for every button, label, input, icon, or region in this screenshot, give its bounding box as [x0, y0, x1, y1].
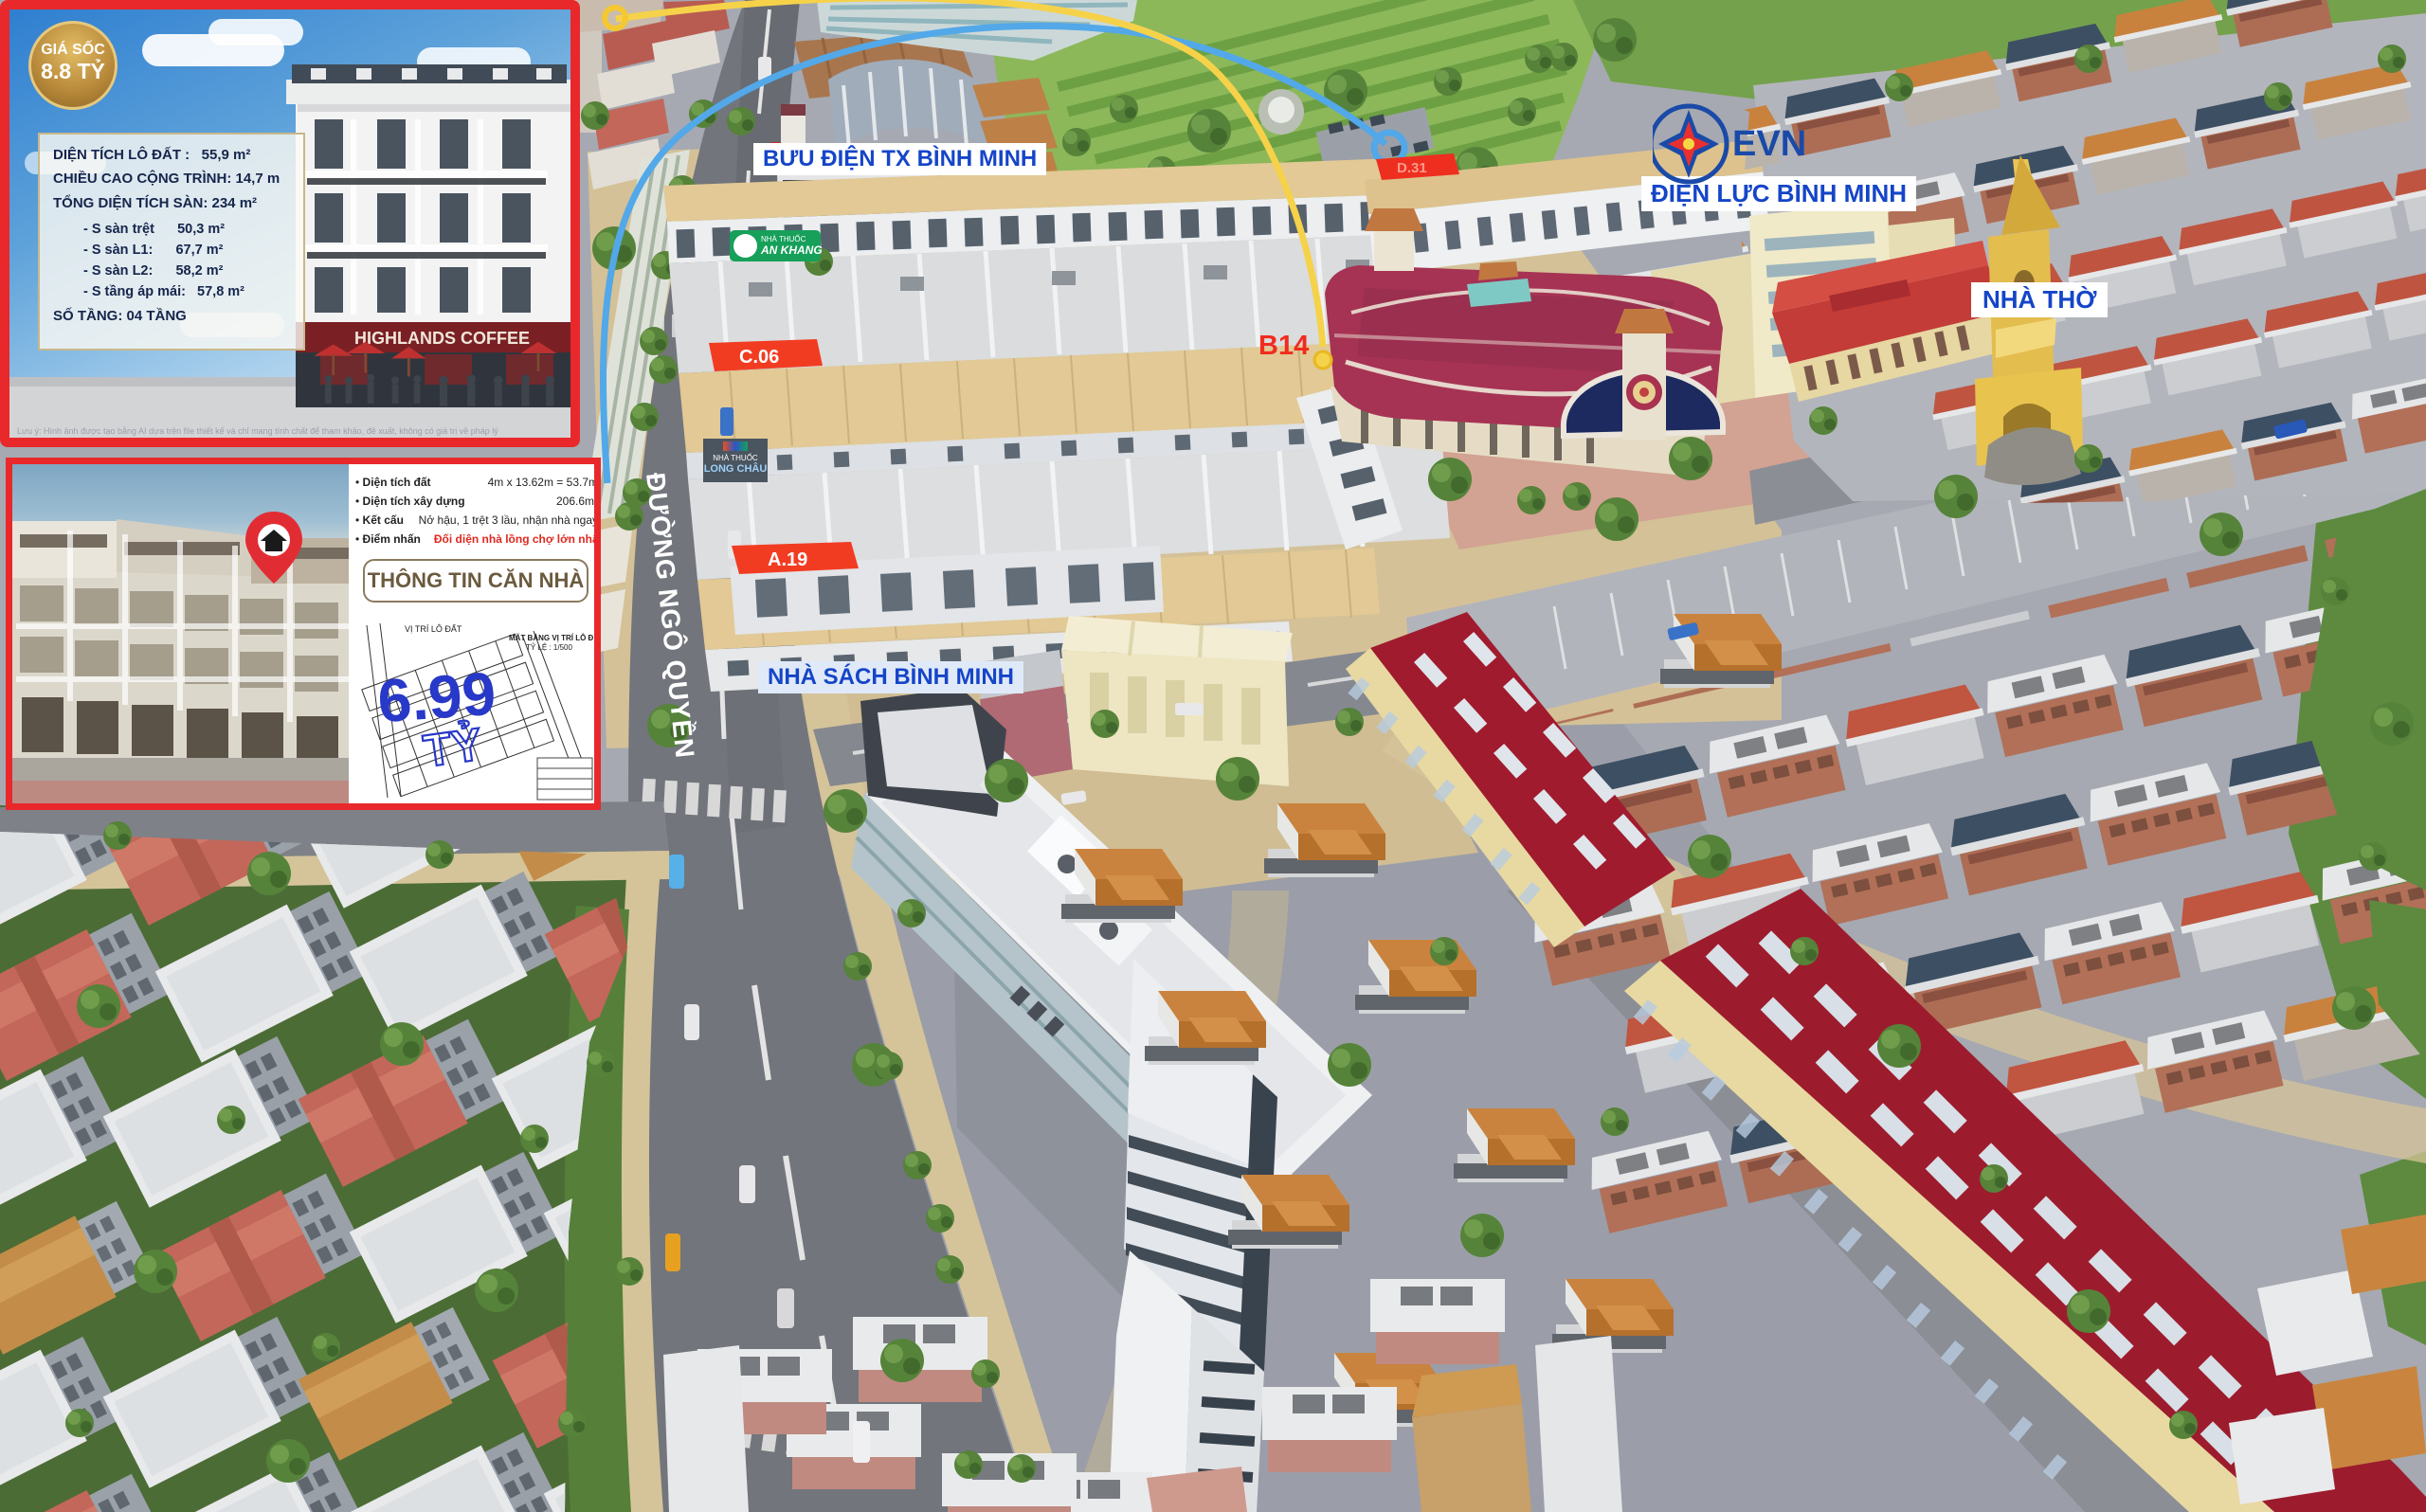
svg-text:TỶ LỆ : 1/500: TỶ LỆ : 1/500: [526, 643, 572, 652]
svg-text:TỶ: TỶ: [421, 717, 485, 777]
svg-text:EVN: EVN: [1732, 124, 1804, 164]
svg-text:D.31: D.31: [1397, 160, 1427, 176]
svg-text:MẶT BẰNG VỊ TRÍ LÔ Đ: MẶT BẰNG VỊ TRÍ LÔ Đ: [509, 634, 594, 642]
svg-text:6.99: 6.99: [375, 659, 498, 736]
svg-text:A.19: A.19: [768, 549, 807, 570]
svg-text:VỊ TRÍ LÔ ĐẤT: VỊ TRÍ LÔ ĐẤT: [405, 624, 462, 634]
svg-text:B14: B14: [1258, 331, 1309, 361]
svg-text:C.06: C.06: [739, 347, 779, 368]
